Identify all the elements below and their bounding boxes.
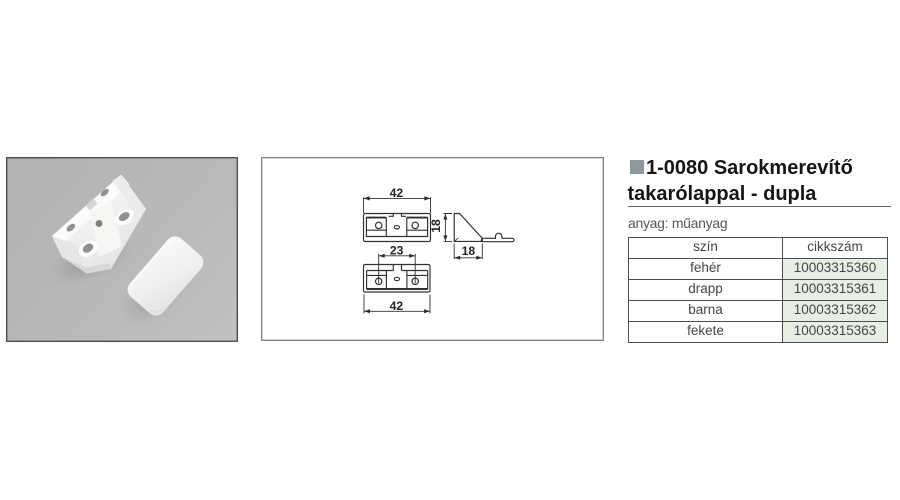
svg-text:42: 42 [390,299,404,313]
svg-text:18: 18 [429,219,443,233]
svg-text:18: 18 [462,244,476,258]
svg-text:42: 42 [390,186,404,200]
svg-text:23: 23 [390,243,404,257]
